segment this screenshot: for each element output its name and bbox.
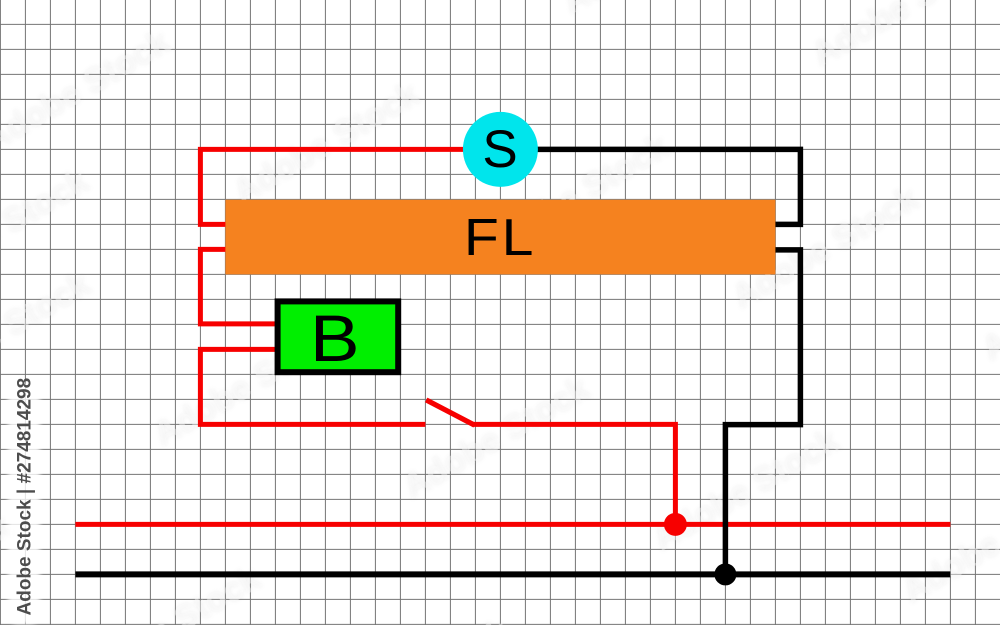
svg-text:B: B <box>310 301 360 375</box>
svg-text:FL: FL <box>464 208 536 266</box>
svg-text:Adobe Stock | #274814298: Adobe Stock | #274814298 <box>15 378 36 616</box>
svg-text:S: S <box>482 120 517 179</box>
